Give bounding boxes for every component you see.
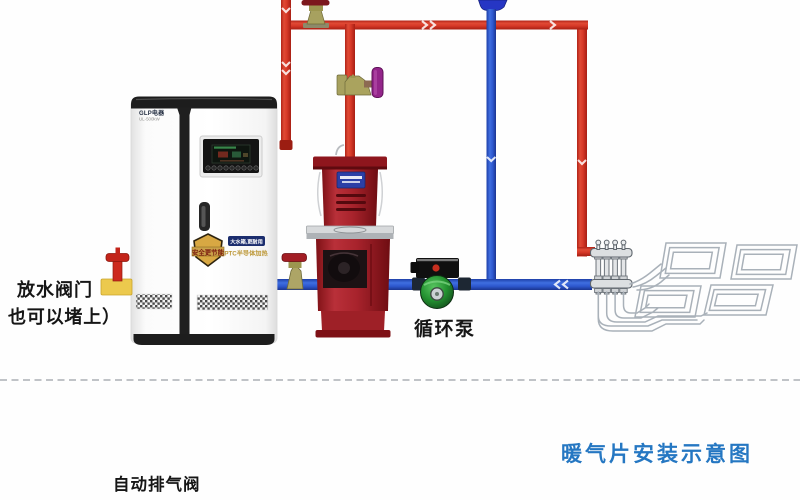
svg-text:UL-500kW: UL-500kW	[139, 117, 161, 122]
svg-text:大水箱,更耐用: 大水箱,更耐用	[230, 238, 263, 246]
svg-text:安全更节能: 安全更节能	[192, 248, 225, 257]
svg-text:PTC半导体加热: PTC半导体加热	[224, 250, 268, 258]
